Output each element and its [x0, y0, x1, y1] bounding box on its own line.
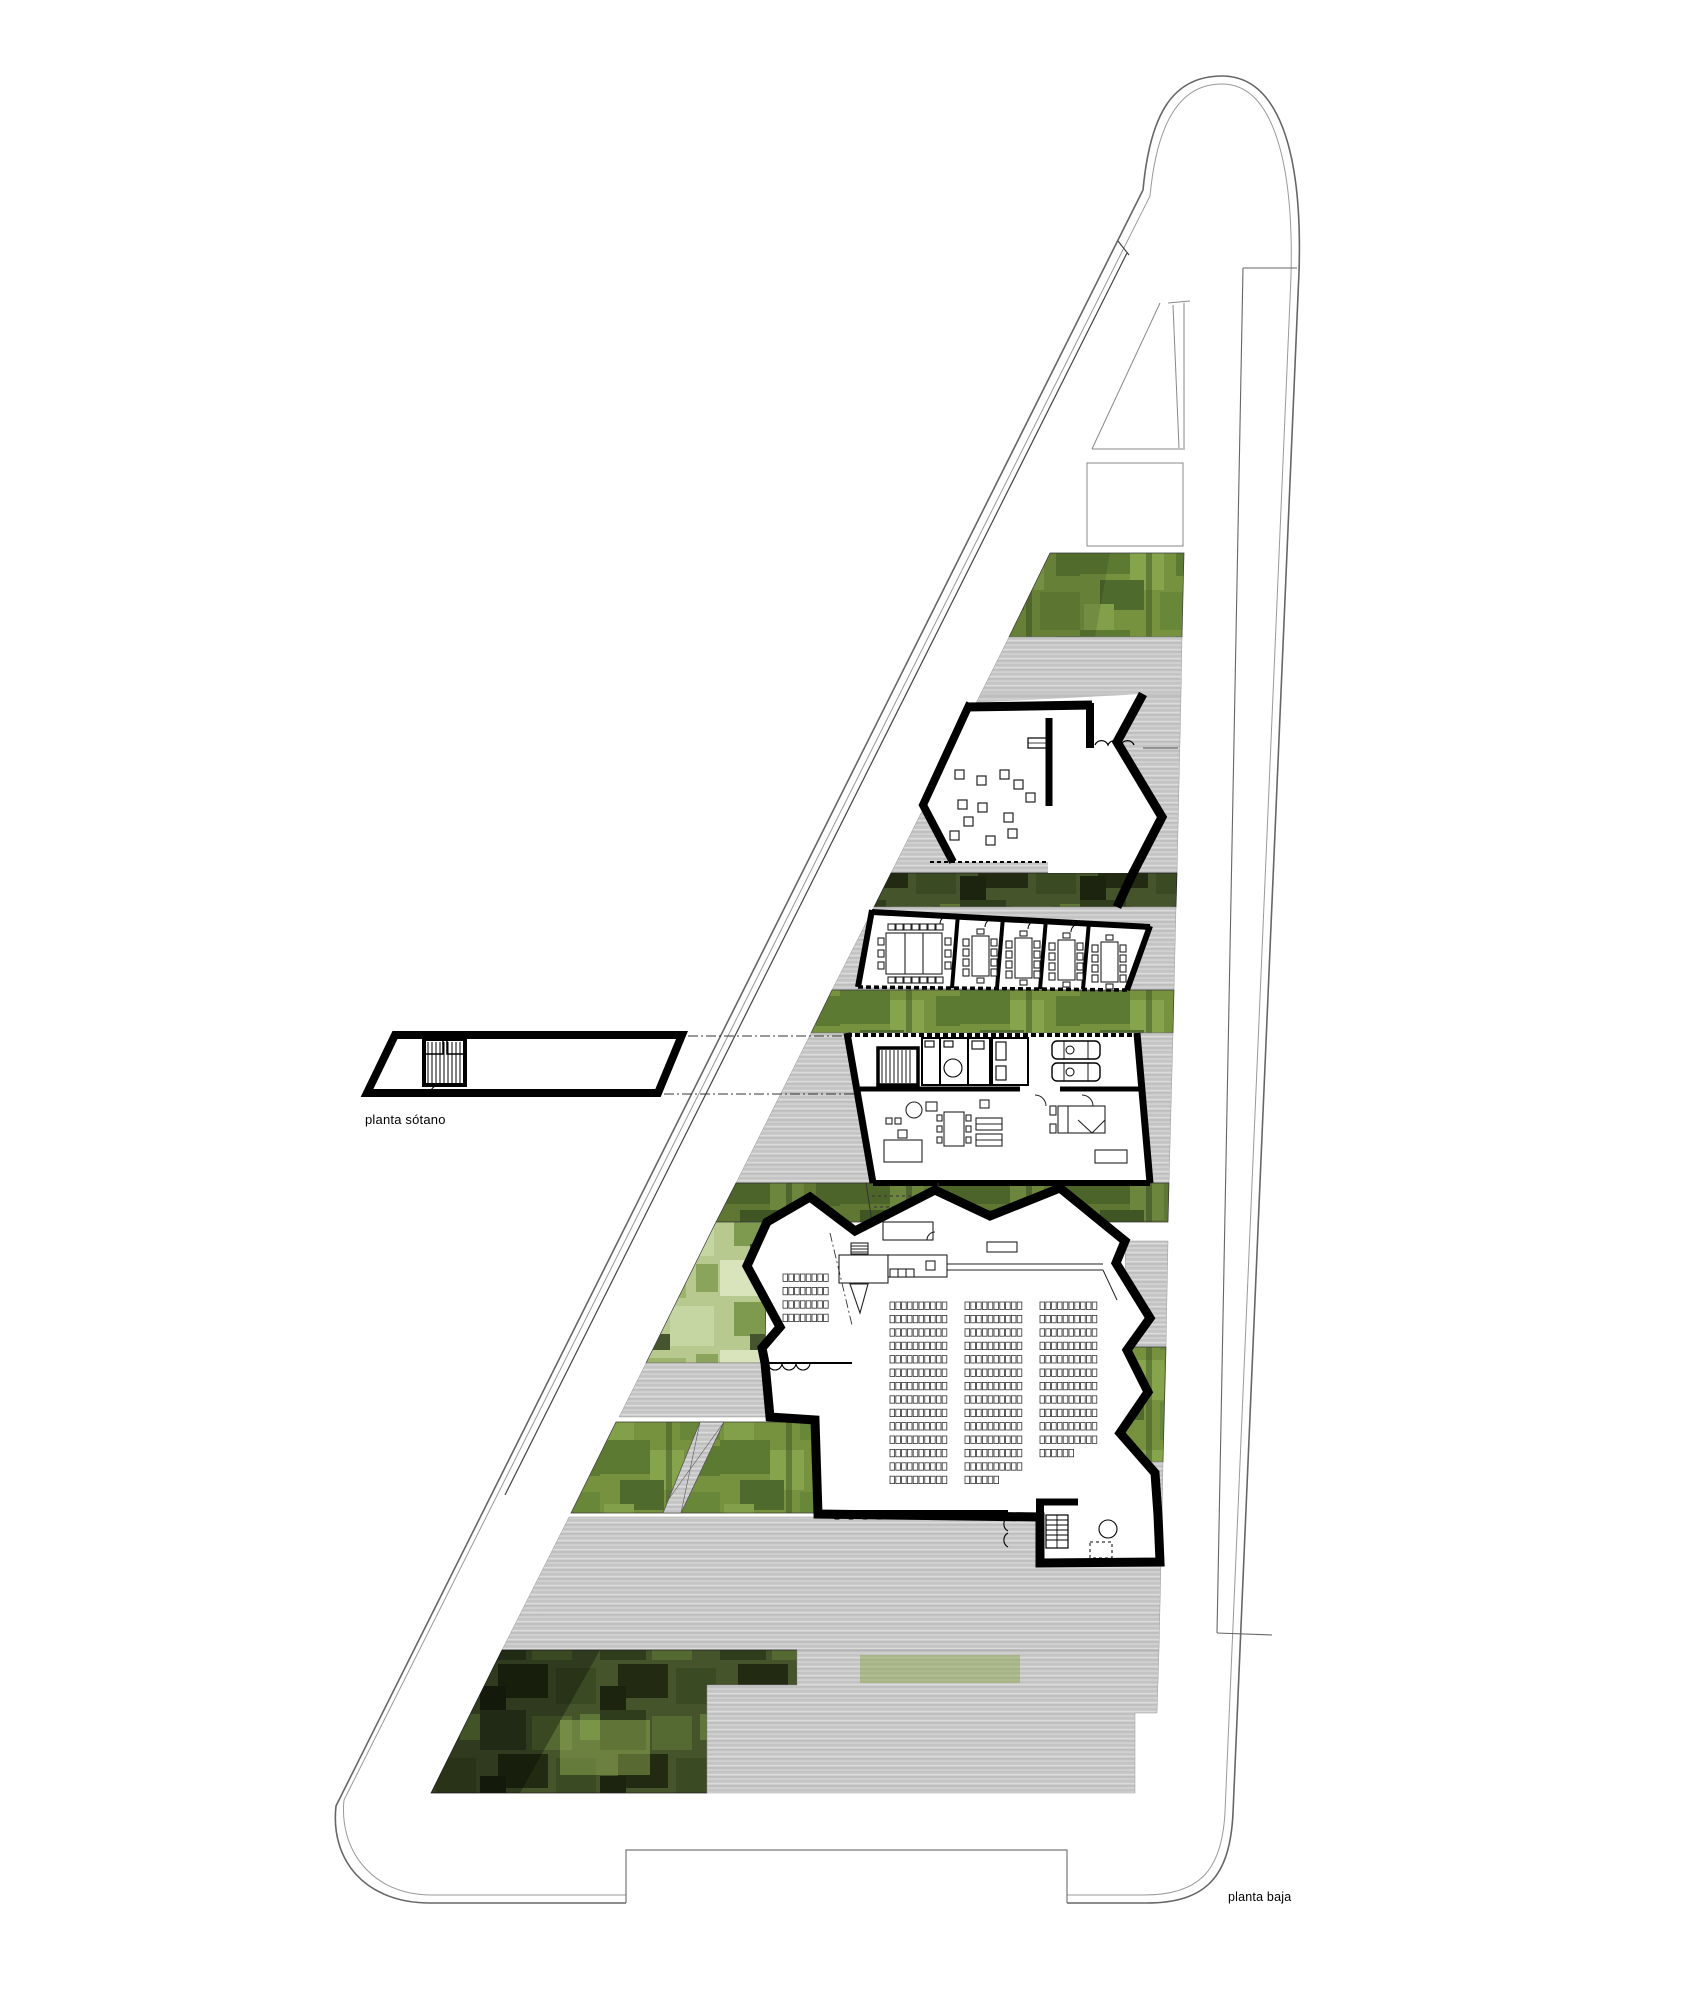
lawn-band: [646, 1222, 767, 1363]
floor-plan-sheet: planta sótano planta baja: [0, 0, 1700, 2000]
basement-plan: [367, 1035, 682, 1093]
meeting-rooms-block: [858, 910, 1150, 990]
paving-band: [980, 637, 1182, 695]
car: [1052, 1063, 1100, 1081]
right-gallery-band: [1217, 268, 1297, 1635]
lawn-band: [811, 990, 1174, 1033]
plan-drawing: [0, 0, 1700, 2000]
ground-floor-label: planta baja: [1228, 1890, 1291, 1904]
car: [1052, 1041, 1100, 1059]
lawn-band-shade: [1009, 553, 1110, 637]
top-right-structure: [1087, 301, 1190, 546]
basement-floor-label: planta sótano: [365, 1112, 446, 1127]
